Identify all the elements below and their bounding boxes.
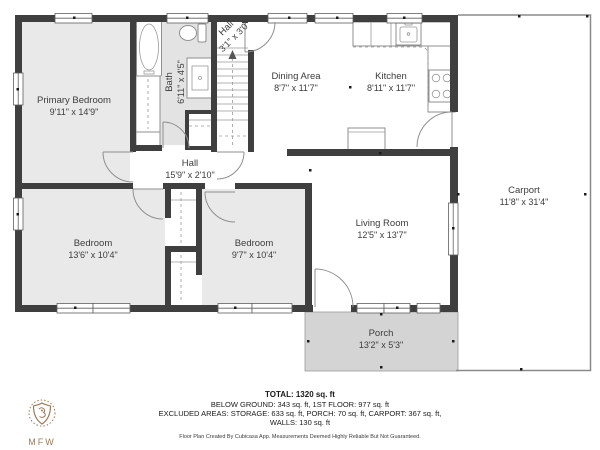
room-label-porch: Porch 13'2" x 5'3" — [359, 328, 403, 352]
room-label-hall: Hall 15'9" x 2'10" — [165, 158, 214, 182]
window — [357, 304, 384, 314]
window — [315, 14, 353, 24]
kitchen-sink — [396, 20, 421, 45]
room-label-living-room: Living Room 12'5" x 13'7" — [356, 218, 409, 242]
window — [252, 304, 292, 314]
room-label-carport: Carport 11'8" x 31'4" — [500, 185, 549, 209]
floor-plan-page: Primary Bedroom 9'11" x 14'9" Bath 6'11"… — [0, 0, 600, 450]
bathtub — [137, 21, 162, 77]
walls-area-text: WALLS: 130 sq. ft — [0, 418, 600, 427]
logo-text: MFW — [20, 437, 64, 447]
floor-plan-canvas — [0, 0, 600, 450]
closet — [136, 76, 160, 150]
window — [93, 304, 130, 314]
window — [417, 304, 440, 314]
room-label-dining-area: Dining Area 8'7" x 11'7" — [271, 71, 320, 95]
room-label-primary-bedroom: Primary Bedroom 9'11" x 14'9" — [37, 95, 111, 119]
room-label-bath: Bath 6'11" x 4'5" — [164, 60, 188, 104]
disclaimer-text: Floor Plan Created By Cubicasa App. Meas… — [0, 434, 600, 441]
room-label-kitchen: Kitchen 8'11" x 11'7" — [367, 71, 415, 95]
room-label-bedroom-left: Bedroom 13'6" x 10'4" — [68, 238, 117, 262]
total-area-text: TOTAL: 1320 sq. ft — [0, 390, 600, 400]
vanity-sink — [187, 58, 213, 98]
window — [268, 14, 307, 24]
room-label-bedroom-right: Bedroom 9'7" x 10'4" — [232, 238, 276, 262]
bath-closet — [187, 112, 213, 148]
refrigerator — [348, 128, 385, 150]
toilet — [180, 24, 207, 42]
shield-crest-icon — [24, 398, 60, 432]
excluded-areas-text: EXCLUDED AREAS: STORAGE: 633 sq. ft, POR… — [0, 409, 600, 418]
below-ground-text: BELOW GROUND: 343 sq. ft, 1ST FLOOR: 977… — [0, 400, 600, 409]
floor-fills — [15, 15, 458, 371]
area-summary: TOTAL: 1320 sq. ft BELOW GROUND: 343 sq.… — [0, 390, 600, 440]
brand-logo: MFW — [20, 398, 64, 447]
